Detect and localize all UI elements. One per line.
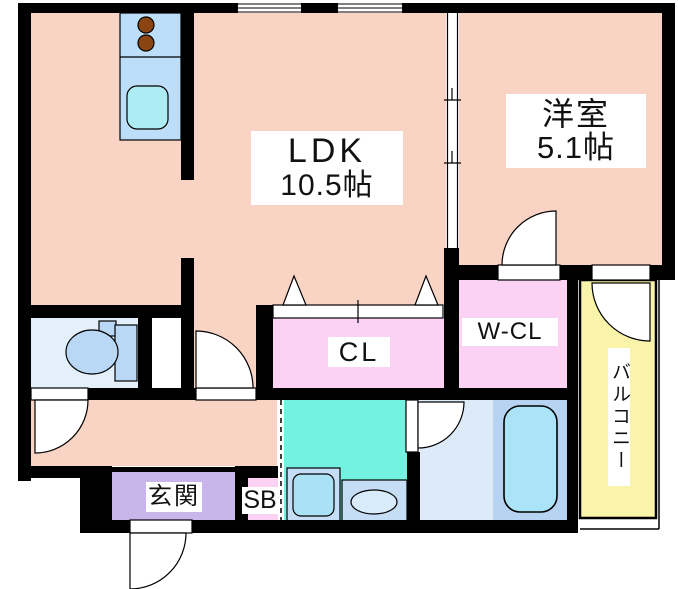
balcony-label: バルコニー <box>608 348 630 486</box>
western-room-label: 洋室 5.1帖 <box>506 94 646 168</box>
ldk-size: 10.5帖 <box>280 170 373 202</box>
wall-ldk-bottom <box>31 305 194 318</box>
ldk-name: LDK <box>288 134 366 170</box>
ldk-door-leaf <box>196 388 256 400</box>
wall-right <box>662 3 675 280</box>
entrance-door-swing <box>130 533 186 589</box>
shoe-box-label: SB <box>242 487 278 514</box>
wall-wcl-left <box>444 248 459 400</box>
bathroom-door-leaf <box>406 400 418 452</box>
wall-bath-right <box>567 280 578 520</box>
pipe-space <box>152 318 181 388</box>
stove-burner-icon <box>138 17 154 33</box>
wall-bath-divider <box>407 452 420 522</box>
wall-step-horizontal <box>18 466 112 478</box>
closet-label: CL <box>328 337 390 367</box>
western-room-size: 5.1帖 <box>537 132 615 165</box>
wall-toilet-right <box>138 318 152 400</box>
kitchen-sink-icon <box>127 86 168 129</box>
wall-step-vertical <box>80 478 112 533</box>
ldk-room-label: LDK 10.5帖 <box>251 131 403 205</box>
bathtub-icon <box>504 406 557 512</box>
walk-in-closet-label: W-CL <box>462 318 558 346</box>
toilet-door-leaf <box>31 388 88 400</box>
entrance-door-leaf <box>130 520 192 533</box>
wall-top-1 <box>18 3 238 13</box>
toilet-bowl-icon <box>66 330 118 374</box>
wall-mid-band-1 <box>88 388 196 400</box>
wall-western-bottom-3 <box>650 265 662 280</box>
wall-western-bottom-1 <box>459 265 498 280</box>
wall-western-bottom-2 <box>560 265 592 280</box>
wall-kitchen-upper <box>181 13 194 180</box>
western-room-doorway <box>498 265 560 280</box>
wall-kitchen-lower <box>181 258 194 400</box>
entrance-label: 玄関 <box>146 482 202 512</box>
western-room-name: 洋室 <box>542 98 610 132</box>
wall-mid-band-2 <box>256 388 578 400</box>
wall-bottom-2 <box>192 520 578 533</box>
wall-closet-left <box>256 305 273 400</box>
entrance-step-line <box>112 467 235 472</box>
wall-shoebox-top <box>235 466 278 478</box>
stove-burner-icon <box>138 35 154 51</box>
wall-left <box>18 3 31 481</box>
wall-top-3 <box>402 3 675 13</box>
washbasin-bowl-icon <box>351 490 397 514</box>
washing-machine-pan-inner <box>293 474 334 516</box>
floor-plan: LDK 10.5帖 洋室 5.1帖 CL W-CL 玄関 SB バルコニー <box>0 0 678 589</box>
wall-top-2 <box>301 3 338 13</box>
balcony-doorway <box>592 265 650 280</box>
floor-plan-drawing <box>0 0 678 589</box>
